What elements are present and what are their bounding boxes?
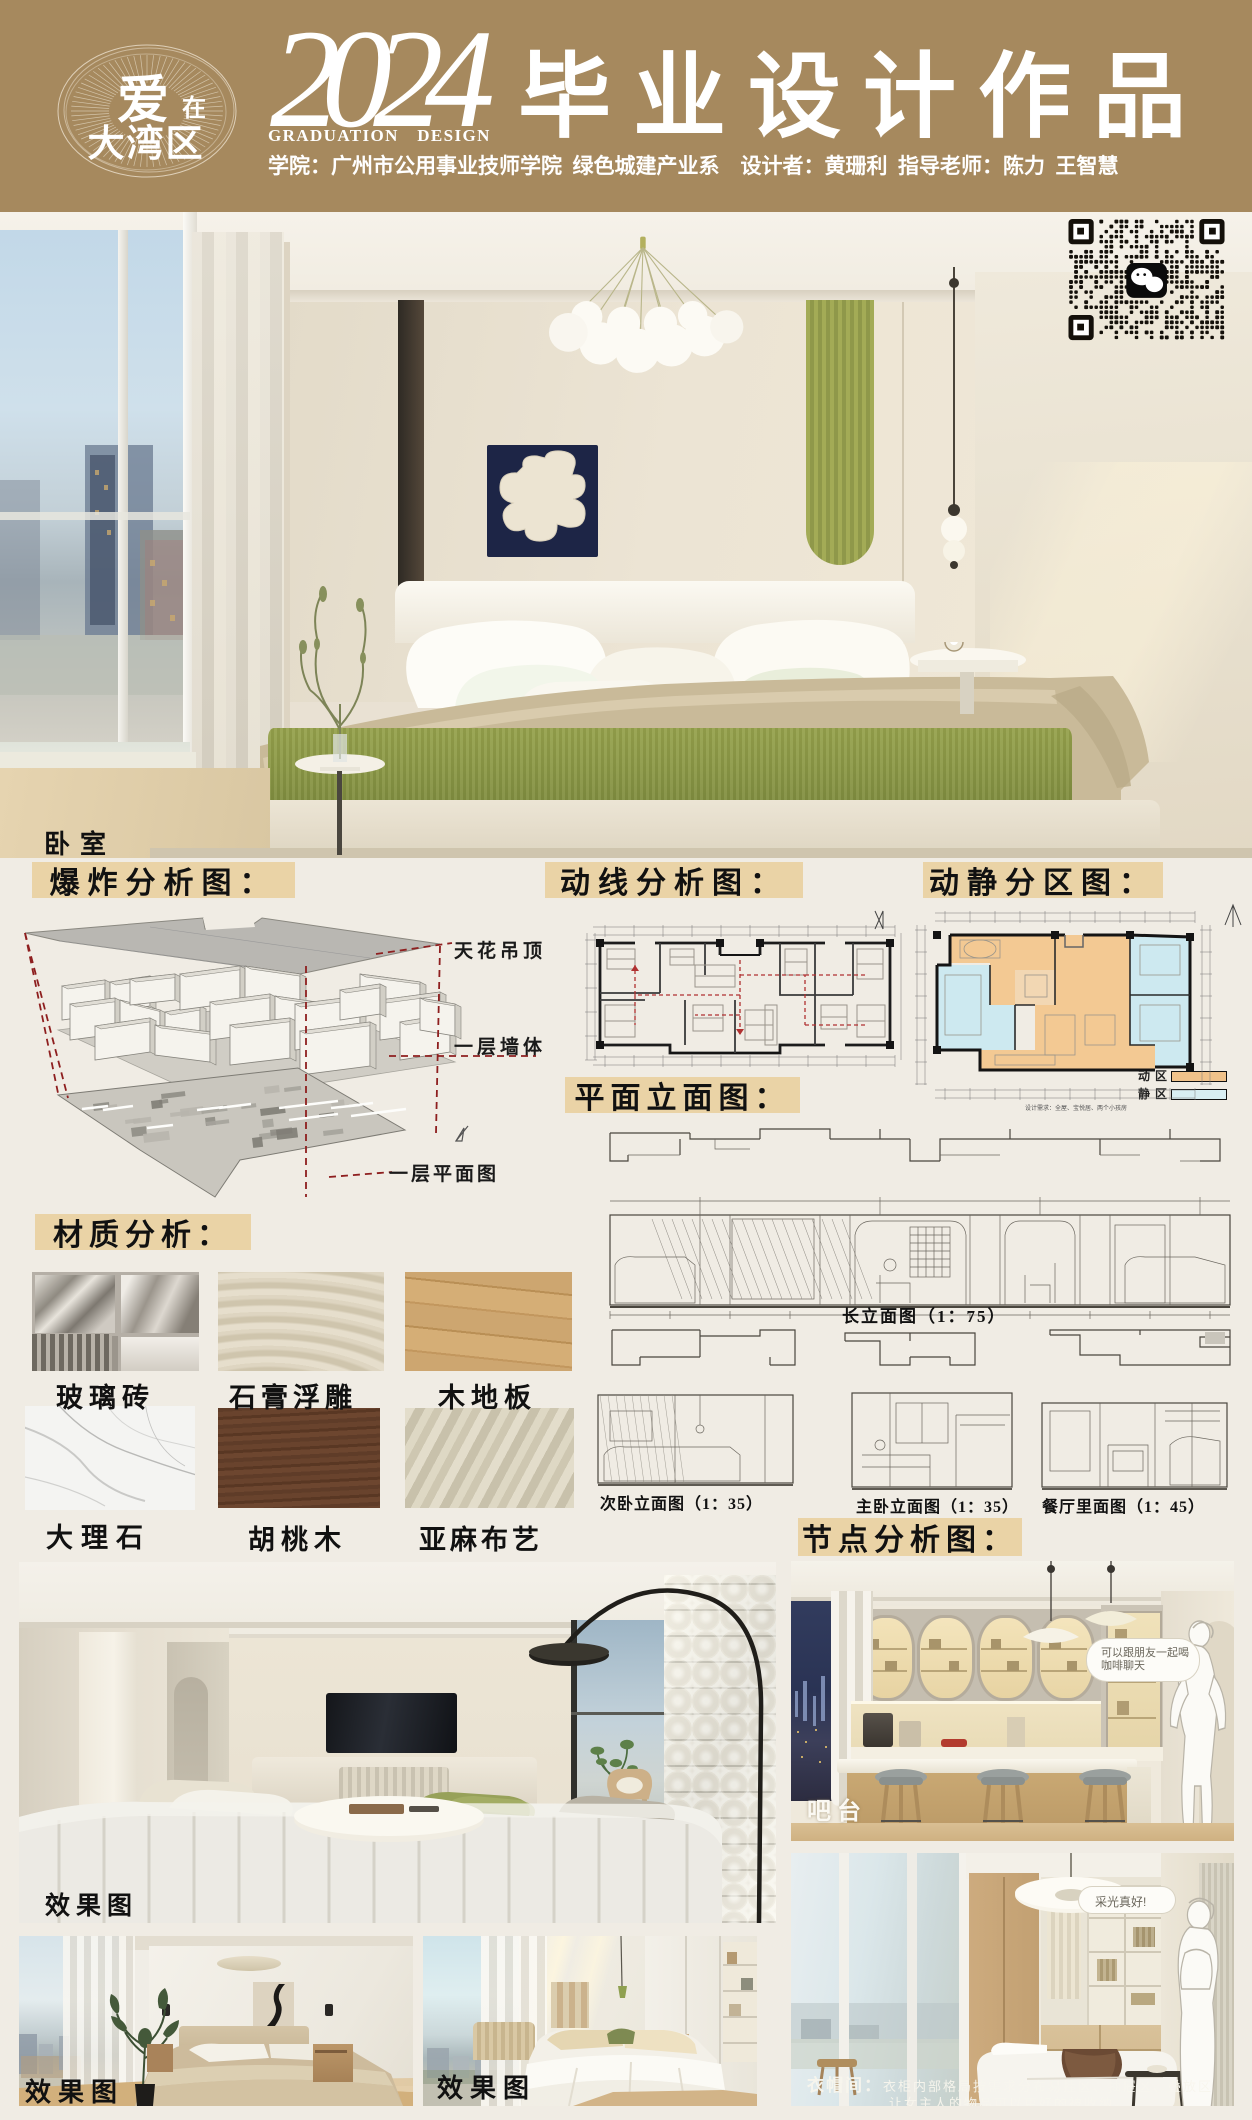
svg-text:天花吊顶: 天花吊顶 xyxy=(454,939,546,962)
svg-text:爱: 爱 xyxy=(117,72,169,130)
svg-text:大湾区: 大湾区 xyxy=(88,122,205,164)
svg-text:一层平面图: 一层平面图 xyxy=(389,1163,499,1185)
svg-text:在: 在 xyxy=(182,94,206,122)
svg-text:长立面图（1：75）: 长立面图（1：75） xyxy=(842,1306,1007,1326)
svg-text:餐厅里面图（1：45）: 餐厅里面图（1：45） xyxy=(1041,1497,1205,1515)
svg-text:主卧立面图（1：35）: 主卧立面图（1：35） xyxy=(856,1497,1019,1515)
svg-text:设计需求：全屋、宝悦居、两个小孩房: 设计需求：全屋、宝悦居、两个小孩房 xyxy=(1025,1104,1127,1112)
svg-text:一层墙体: 一层墙体 xyxy=(454,1035,546,1058)
svg-text:次卧立面图（1：35）: 次卧立面图（1：35） xyxy=(600,1494,763,1513)
